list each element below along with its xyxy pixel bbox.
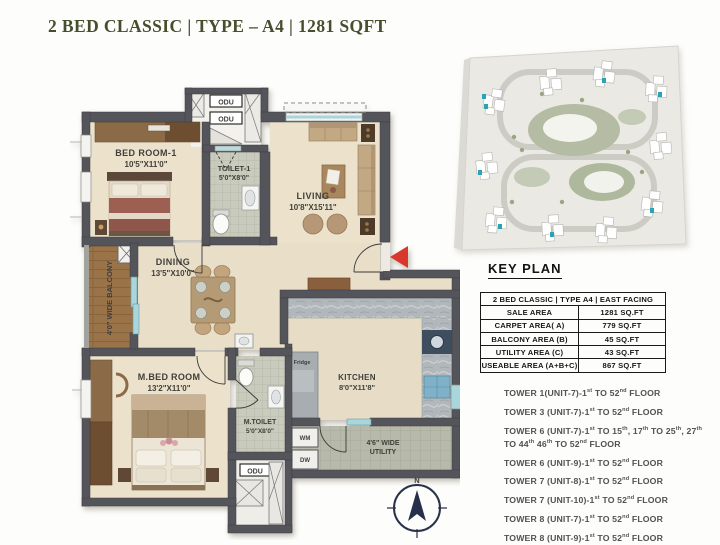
leader-ticks [70,142,82,390]
area-value: 779 SQ.FT [579,319,666,332]
room-label-mtoilet: M.TOILET [244,419,277,426]
wardrobe-mbed [90,360,112,422]
fridge-label: Fridge [294,360,311,366]
room-dim-mtoilet: 5'0"X8'0" [246,428,274,435]
odu-label-1: ODU [218,100,234,107]
area-table-row: BALCONY AREA (B)45 SQ.FT [481,332,666,345]
mbed-side-table-right [206,468,219,482]
north-compass: N [387,476,447,538]
area-table-row: CARPET AREA( A)779 SQ.FT [481,319,666,332]
wm-label: WM [300,436,311,442]
area-table-row: UTILITY AREA (C)43 SQ.FT [481,346,666,359]
tower-floor-info: TOWER 6 (UNIT-7)-1st TO 15th, 17th TO 25… [504,424,709,450]
area-table-row: SALE AREA1281 SQ.FT [481,306,666,319]
room-label-living: LIVING [296,191,329,201]
room-label-mbed: M.BED ROOM [138,372,201,382]
area-value: 45 SQ.FT [579,332,666,345]
area-table-header: 2 BED CLASSIC | TYPE A4 | EAST FACING [481,293,666,306]
compass-n-label: N [414,476,419,485]
room-label-balcony: 4'0" WIDE BALCONY [105,261,114,336]
room-label-toilet1: TOILET-1 [218,164,251,173]
tower-floor-info: TOWER 8 (UNIT-7)-1st TO 52nd FLOOR [504,512,709,525]
key-plan-heading: KEY PLAN [488,261,562,279]
area-label: CARPET AREA( A) [481,319,579,332]
page-title: 2 BED CLASSIC | TYPE – A4 | 1281 SQFT [48,16,387,37]
area-label: SALE AREA [481,306,579,319]
room-dim-toilet1: 5'0"X8'0" [219,175,249,182]
north-arrow-icon [408,490,426,521]
brochure-page: 2 BED CLASSIC | TYPE – A4 | 1281 SQFT [0,0,720,545]
area-label: UTILITY AREA (C) [481,346,579,359]
area-table-row: USEABLE AREA (A+B+C)867 SQ.FT [481,359,666,372]
tower-floor-info: TOWER 7 (UNIT-10)-1st TO 52nd FLOOR [504,493,709,506]
pouf-1 [303,214,323,234]
dw-label: DW [300,458,310,464]
side-table [361,124,375,142]
room-label-bedroom1: BED ROOM-1 [115,148,177,158]
room-dim-dining: 13'5"X10'0" [151,269,195,278]
area-value: 1281 SQ.FT [579,306,666,319]
tower-floor-info: TOWER 1(UNIT-7)-1st TO 52nd FLOOR [504,386,709,399]
mbed-side-table-left [118,468,131,482]
bed1-headboard [107,172,172,181]
console-cabinet [308,278,350,290]
tower-floor-info: TOWER 3 (UNIT-7)-1st TO 52nd FLOOR [504,405,709,418]
pouf-2 [327,214,347,234]
tower-floor-info: TOWER 7 (UNIT-8)-1st TO 52nd FLOOR [504,474,709,487]
site-key-plan-map [452,42,692,257]
area-label: USEABLE AREA (A+B+C) [481,359,579,372]
area-table: 2 BED CLASSIC | TYPE A4 | EAST FACINGSAL… [480,292,666,373]
room-dim-bedroom1: 10'5"X11'0" [125,160,168,169]
room-label-kitchen: KITCHEN [338,373,376,382]
area-value: 43 SQ.FT [579,346,666,359]
floor-plan: BED ROOM-1 10'5"X11'0" TOILET-1 5'0"X8'0… [70,80,460,540]
area-value: 867 SQ.FT [579,359,666,372]
open-balcony-dashed [284,103,366,112]
odu-label-2: ODU [218,117,234,124]
room-dim-living: 10'8"X15'11" [289,203,337,212]
room-dim-kitchen: 8'0"X11'8" [339,383,376,392]
room-dim-mbed: 13'2"X11'0" [148,384,191,393]
entry-arrow-icon [390,246,408,268]
area-label: BALCONY AREA (B) [481,332,579,345]
tower-floor-info: TOWER 6 (UNIT-9)-1st TO 52nd FLOOR [504,456,709,469]
room-label-dining: DINING [156,257,191,267]
wc-mtoilet [239,368,253,386]
kitchen-counter-top [287,298,452,318]
side-table-2 [360,218,375,235]
wc-toilet1 [213,214,229,234]
tower-floor-list: TOWER 1(UNIT-7)-1st TO 52nd FLOORTOWER 3… [504,386,709,545]
tower-floor-info: TOWER 8 (UNIT-9)-1st TO 52nd FLOOR [504,531,709,544]
room-label-utility-1: 4'6" WIDE [367,440,400,447]
odu-label-3: ODU [247,469,263,476]
room-label-utility-2: UTILITY [370,449,397,456]
